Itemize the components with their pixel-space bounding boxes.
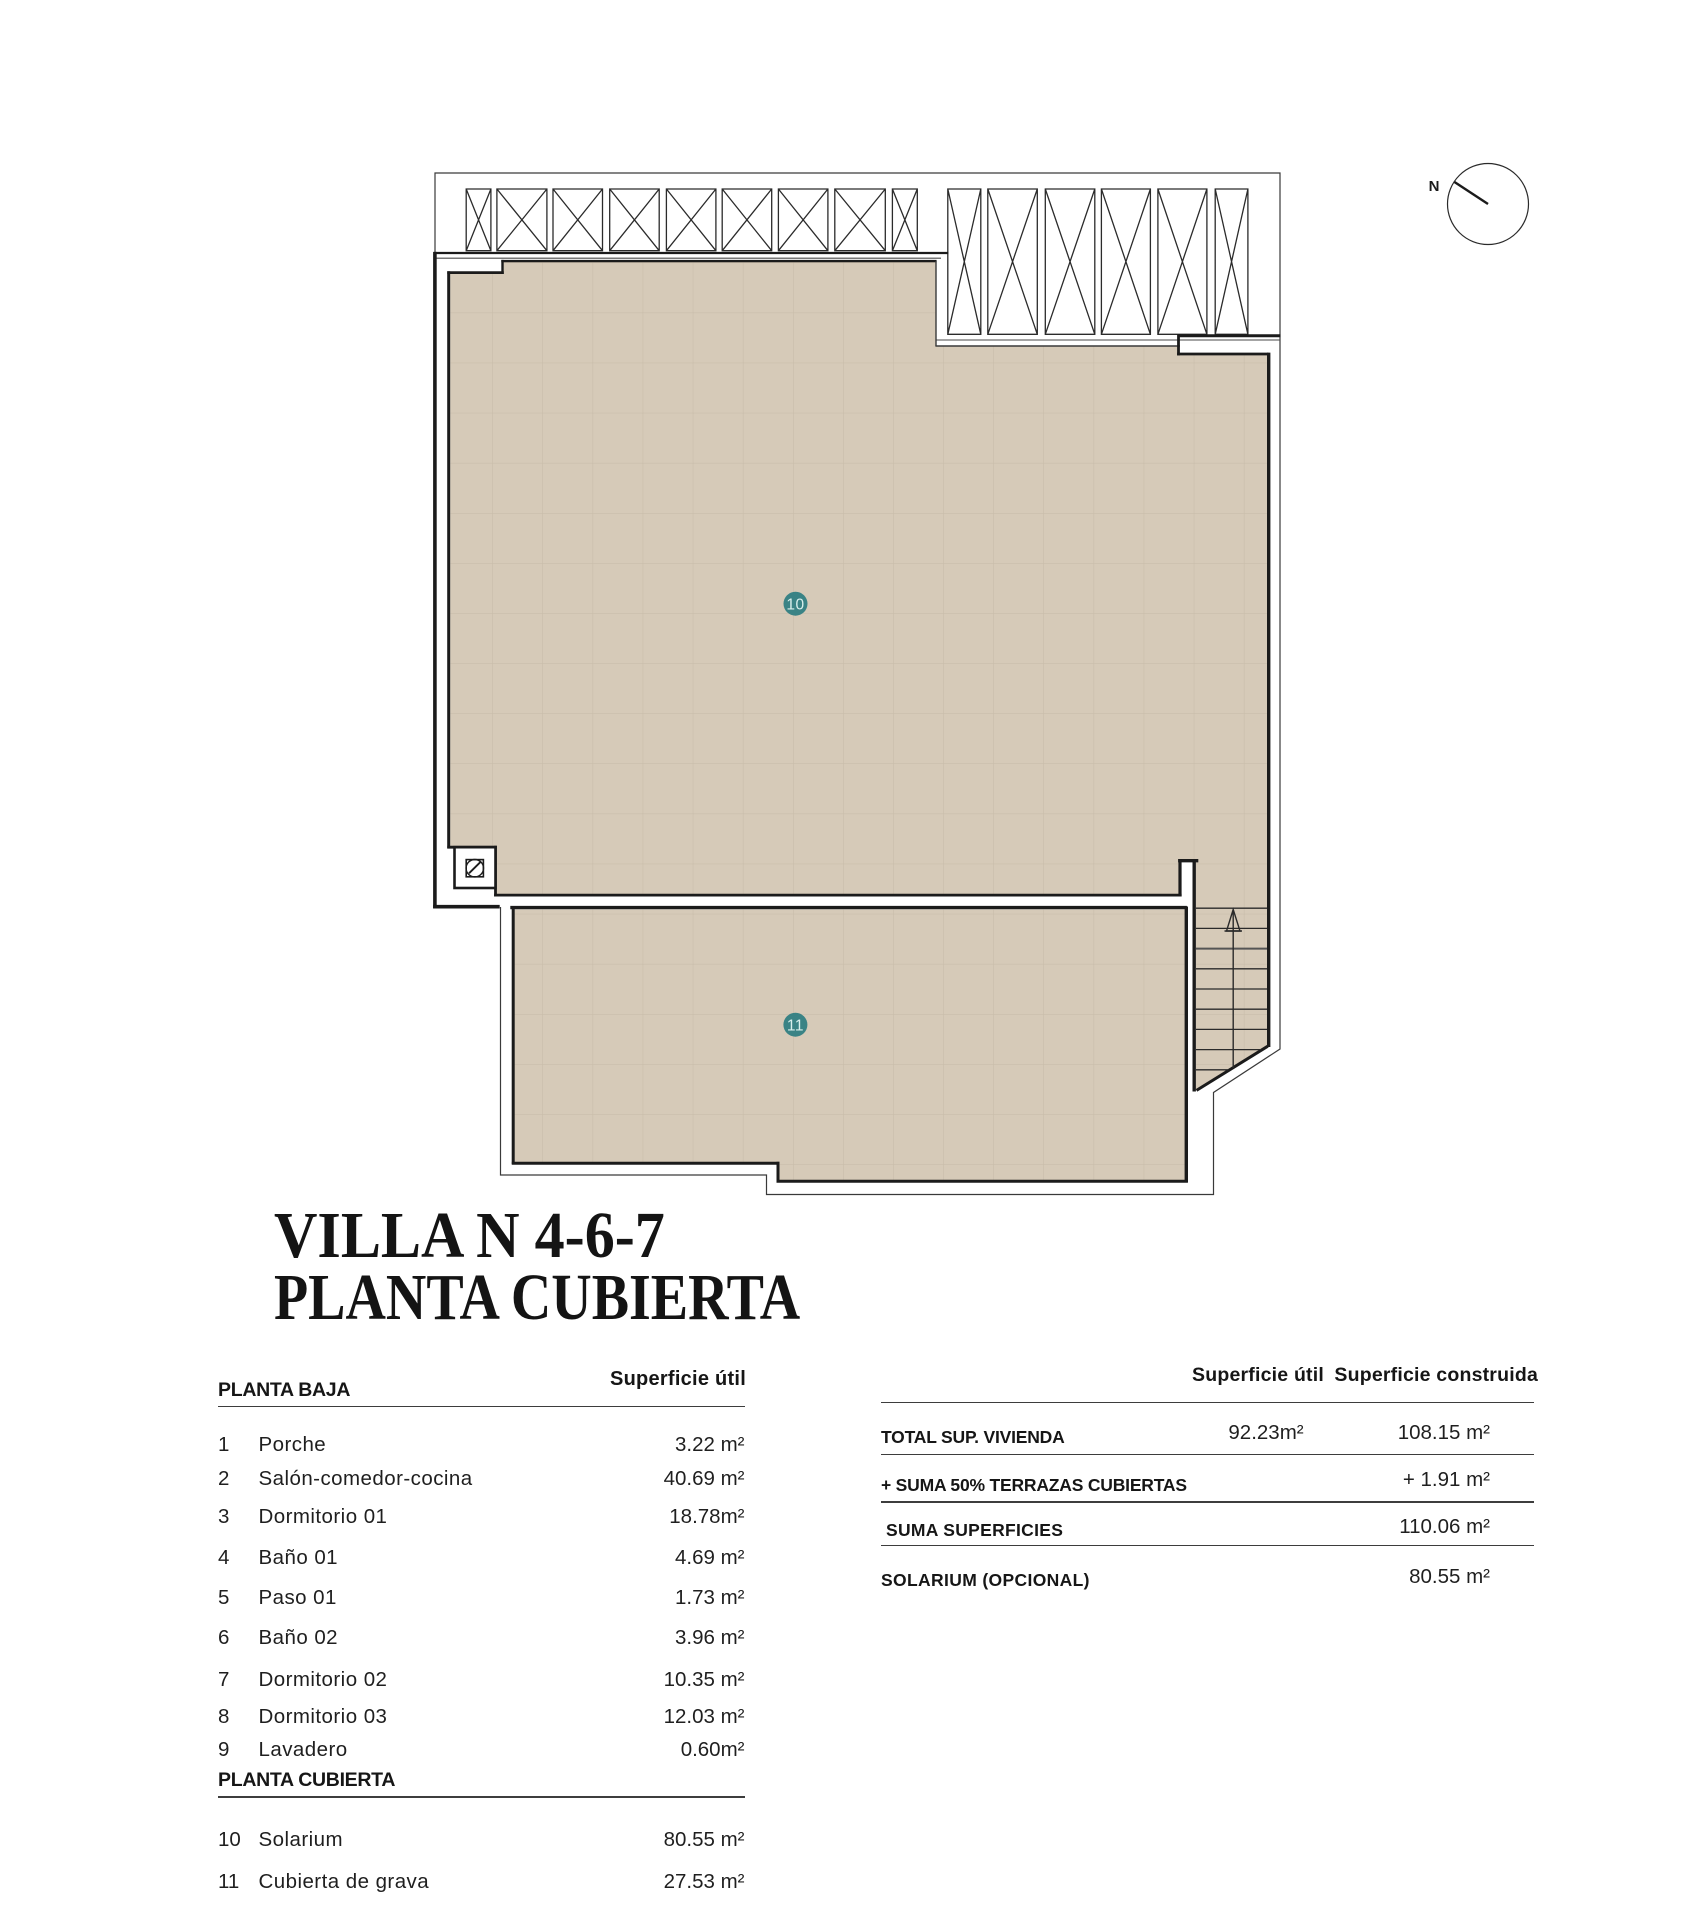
svg-text:N: N [1429, 178, 1440, 195]
svg-text:11: 11 [787, 1018, 804, 1035]
svg-text:10: 10 [786, 597, 804, 614]
